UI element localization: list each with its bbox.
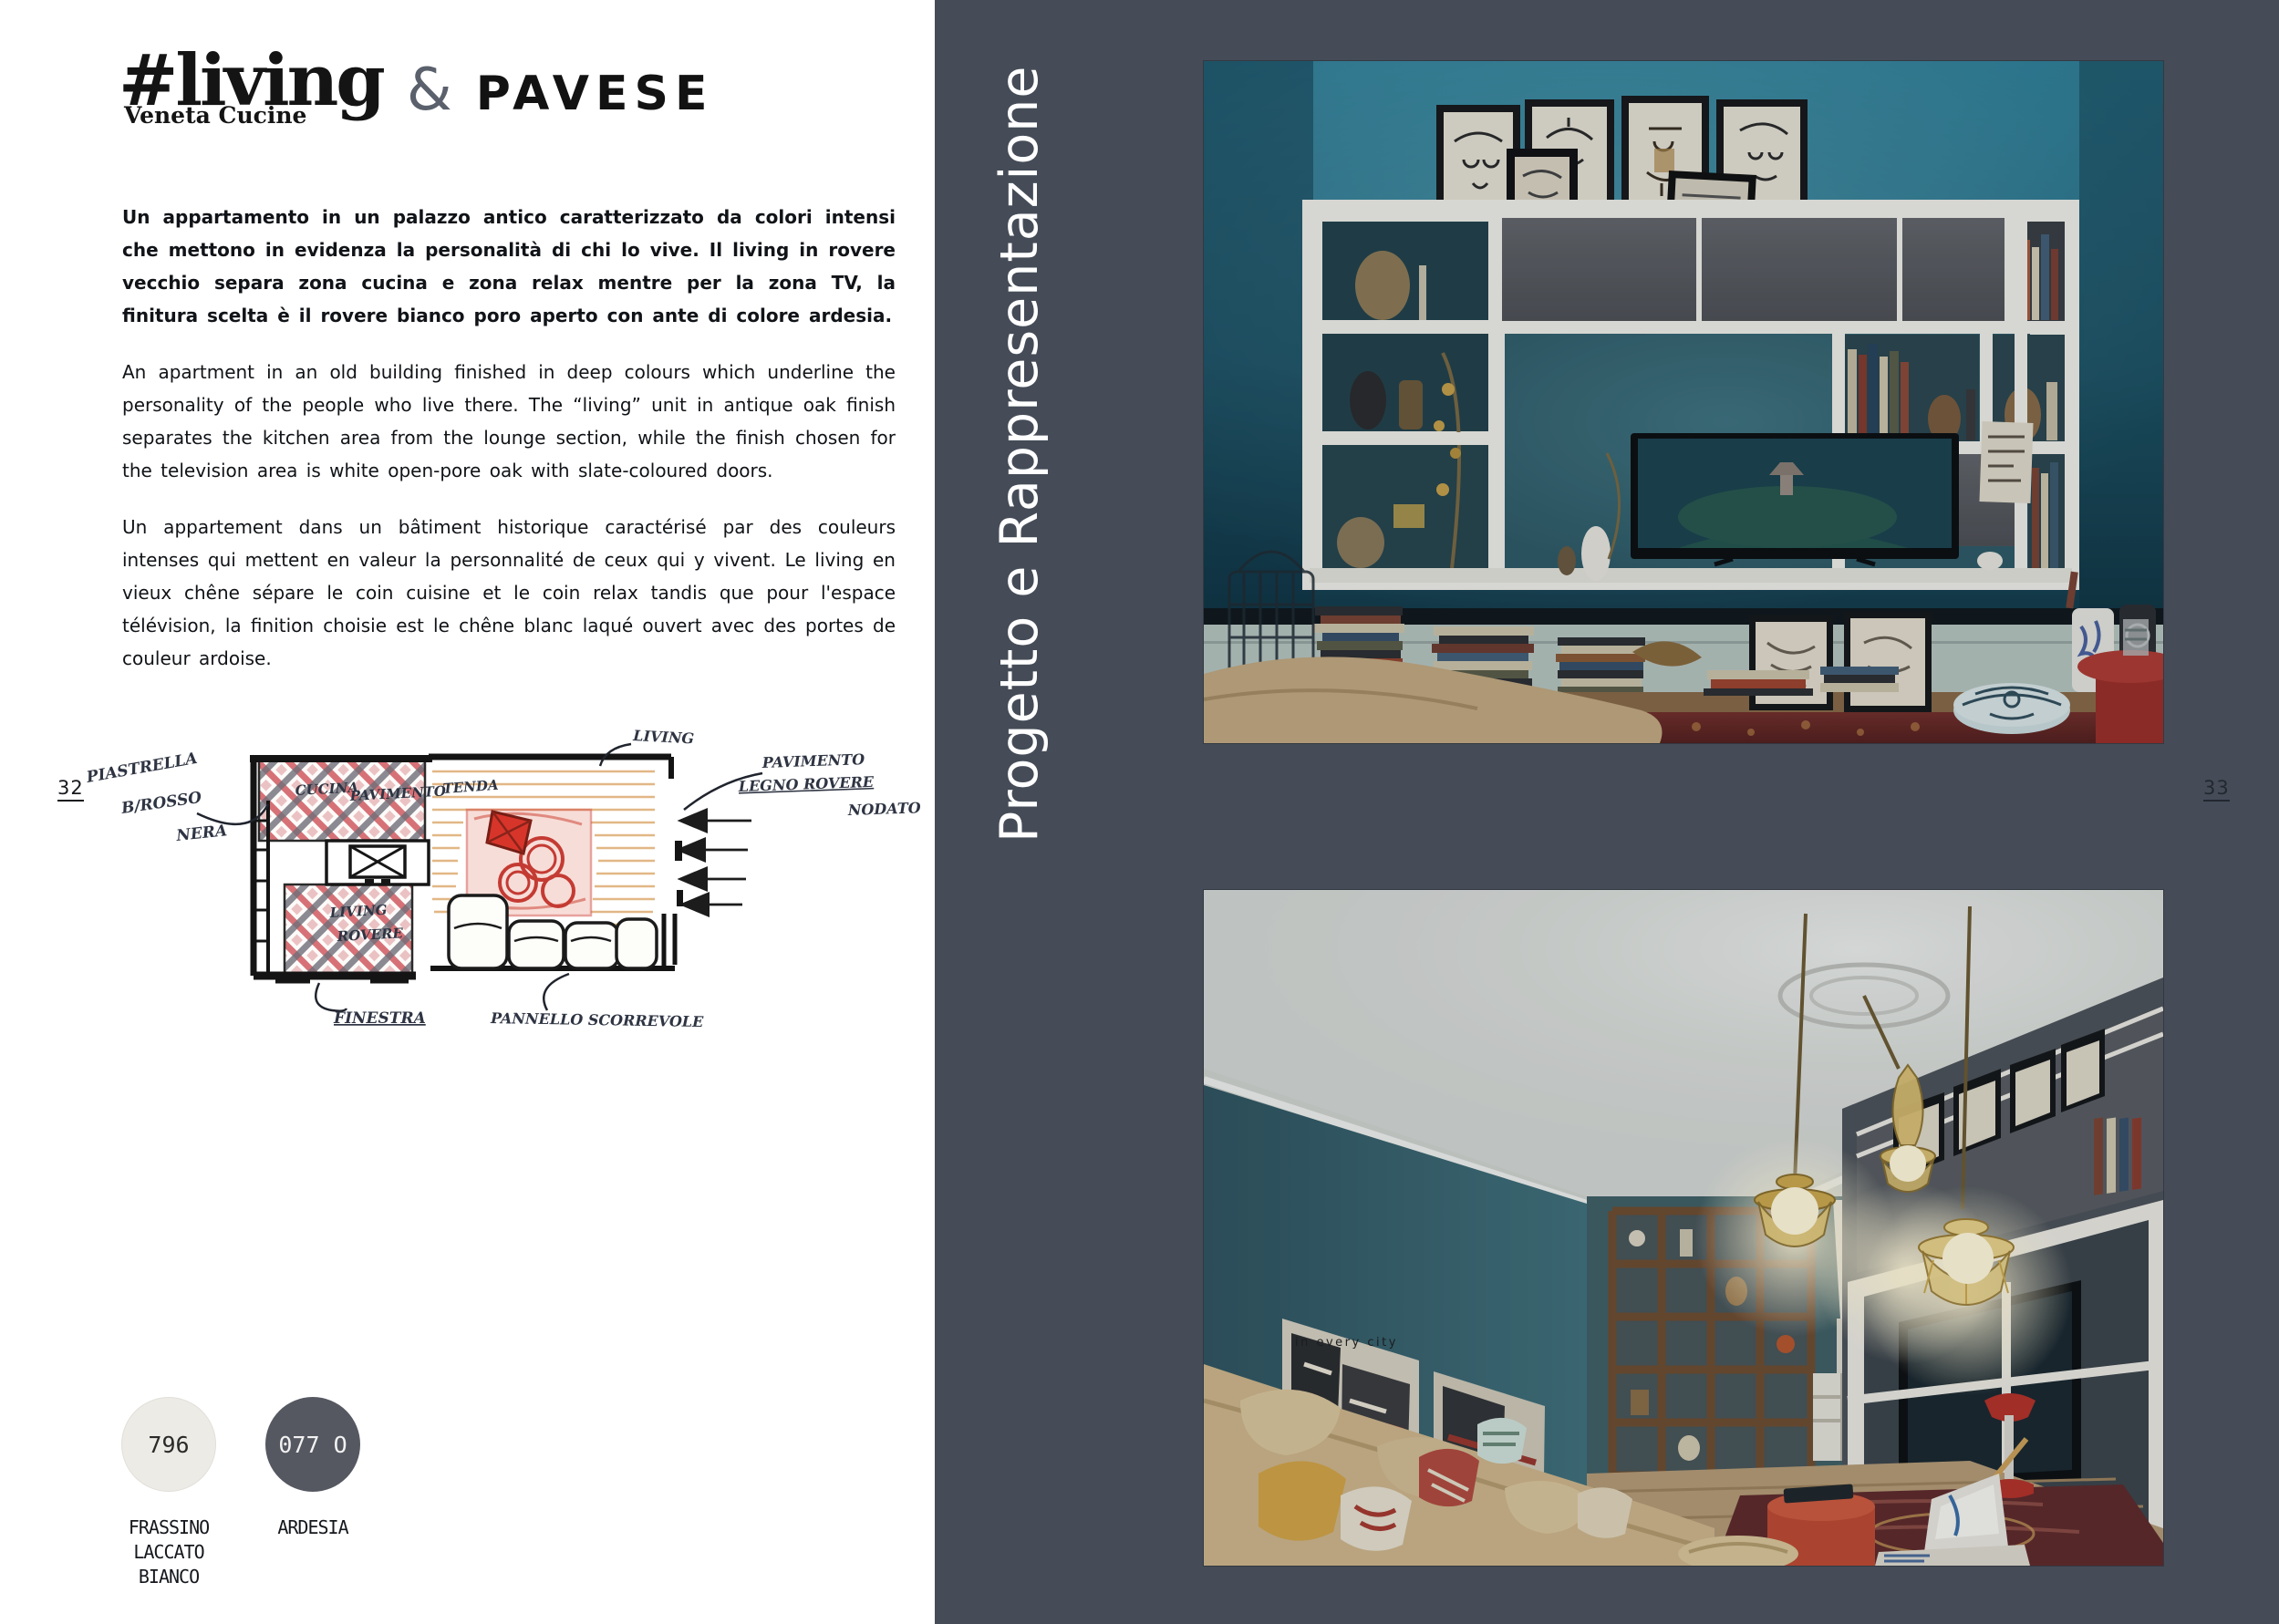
floorplan-sketch-art: PIASTRELLA B/ROSSO NERA CUCINA PAVIMENTO… <box>80 702 921 1065</box>
finish-ardesia-name: ARDESIA <box>277 1515 347 1540</box>
photo-lounge: in every city <box>1204 890 2163 1566</box>
section-title-vertical: Progetto e Rappresentazione <box>959 57 1080 843</box>
photo-living-unit-art <box>1204 61 2163 743</box>
finish-frassino-code: 796 <box>148 1432 189 1458</box>
finish-ardesia: 077 O ARDESIA <box>254 1397 372 1589</box>
finish-swatches: 796 FRASSINO LACCATO BIANCO 077 O ARDESI… <box>109 1397 372 1589</box>
floorplan-sketch: PIASTRELLA B/ROSSO NERA CUCINA PAVIMENTO… <box>80 702 921 1065</box>
finish-frassino: 796 FRASSINO LACCATO BIANCO <box>109 1397 228 1589</box>
annotation-living: LIVING <box>632 727 695 748</box>
photo-lounge-art: in every city <box>1204 890 2163 1566</box>
page-number-right: 33 <box>2203 777 2230 802</box>
annotation-wood-floor-1: PAVIMENTO <box>761 750 865 771</box>
finish-frassino-name: FRASSINO LACCATO BIANCO <box>109 1515 228 1589</box>
veneta-cucine-logo: Veneta Cucine <box>124 104 383 127</box>
paragraph-english: An apartment in an old building finished… <box>122 356 896 487</box>
paragraph-italian: Un appartamento in un palazzo antico car… <box>122 201 896 332</box>
finish-ardesia-code: 077 O <box>278 1432 347 1458</box>
annotation-wood-floor-2: LEGNO ROVERE <box>737 773 875 795</box>
brand-lockup: #living Veneta Cucine & PAVESE <box>119 46 714 130</box>
annotation-tiles-2: B/ROSSO <box>119 789 203 818</box>
catalog-spread: Progetto e Rappresentazione <box>0 0 2279 1624</box>
annotation-tiles-3: NERA <box>174 822 228 845</box>
paragraph-french: Un appartement dans un bâtiment historiq… <box>122 511 896 675</box>
finish-frassino-dot: 796 <box>121 1397 216 1492</box>
annotation-tiles-1: PIASTRELLA <box>84 750 199 787</box>
annotation-window: FINESTRA <box>333 1009 426 1028</box>
annotation-living-floor-1: LIVING <box>328 902 388 921</box>
partner-name: PAVESE <box>476 73 714 116</box>
annotation-curtain: TENDA <box>442 777 499 797</box>
annotation-sliding-panel: PANNELLO SCORREVOLE <box>490 1009 704 1030</box>
ampersand: & <box>407 65 452 118</box>
intro-paragraphs: Un appartamento in un palazzo antico car… <box>122 201 896 698</box>
annotation-wood-floor-3: NODATO <box>846 799 920 819</box>
finish-ardesia-dot: 077 O <box>265 1397 360 1492</box>
photo-living-unit <box>1204 61 2163 743</box>
